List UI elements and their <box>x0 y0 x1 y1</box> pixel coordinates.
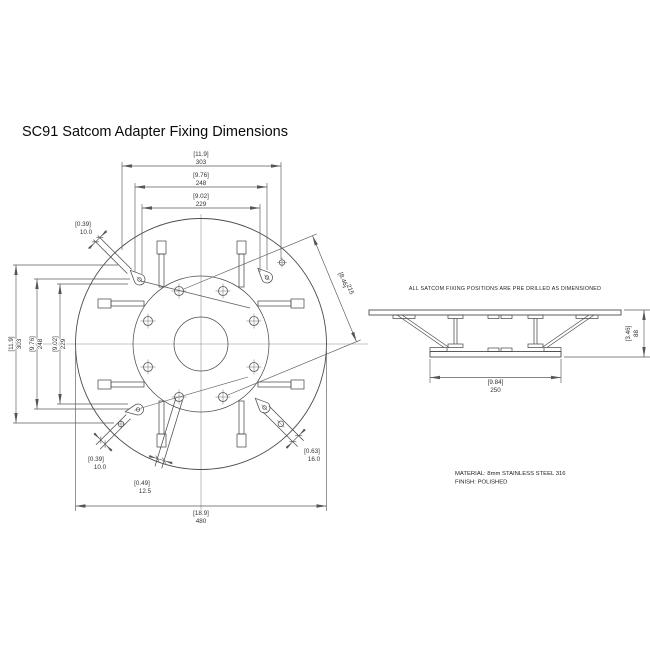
top-plate-section <box>369 310 621 315</box>
bolt-hole <box>141 314 156 329</box>
material-note: MATERIAL: 8mm STAINLESS STEEL 316 <box>455 471 566 477</box>
dim-left-229-mm: 229 <box>60 338 67 349</box>
label-slot-10-bottom-left: [0.39] 10.0 <box>88 456 107 471</box>
technical-drawing: SC91 Satcom Adapter Fixing Dimensions <box>0 0 650 650</box>
dim-bolt-circle: [8.46] 215 <box>183 234 361 396</box>
dim-88-inch: [3.46] <box>625 325 632 341</box>
dim-height: [3.46] 88 <box>564 310 650 357</box>
finish-note: FINISH: POLISHED <box>455 480 507 486</box>
dim-480-inch: [18.9] <box>193 510 209 517</box>
fixing-slot-south-right <box>237 401 246 447</box>
fixing-slot-north-left <box>157 241 166 287</box>
fixing-slot-east-lower <box>258 380 304 389</box>
dim-10b-inch: [0.39] <box>88 456 104 463</box>
front-view-dimensions: [11.9] 303 [9.76] 248 [9.02] 229 [11.9] … <box>8 151 361 525</box>
bolt-hole <box>172 284 187 299</box>
front-view <box>32 214 368 512</box>
dim-16-mm: 16.0 <box>308 456 321 463</box>
label-slot-16: [0.63] 16.0 <box>304 448 321 463</box>
fixing-slot-west-upper <box>98 299 144 308</box>
dim-10b-mm: 10.0 <box>94 464 107 471</box>
dim-16-inch: [0.63] <box>304 448 320 455</box>
construction-lines <box>141 281 250 408</box>
drill-hole <box>277 258 287 268</box>
dim-left-248-mm: 248 <box>37 338 44 349</box>
dim-left-303-mm: 303 <box>16 338 23 349</box>
bolt-hole <box>141 360 156 375</box>
page-title: SC91 Satcom Adapter Fixing Dimensions <box>22 124 288 140</box>
dim-10-mm: 10.0 <box>80 229 93 236</box>
vertical-webs <box>448 315 543 348</box>
dim-303-inch: [11.9] <box>193 151 209 158</box>
base-plate-section <box>430 352 561 358</box>
dim-229-inch: [9.02] <box>193 193 209 200</box>
dim-215-mm: 215 <box>345 283 356 296</box>
fixing-slot-west-lower <box>98 380 144 389</box>
bolt-hole <box>216 390 231 405</box>
dim-125-mm: 12.5 <box>139 488 152 495</box>
fixing-slot-east-upper <box>258 299 304 308</box>
drill-hole <box>116 419 126 429</box>
dim-248-mm: 248 <box>196 180 207 187</box>
dim-250-mm: 250 <box>490 387 501 394</box>
material-notes: MATERIAL: 8mm STAINLESS STEEL 316 FINISH… <box>455 471 566 486</box>
bottom-cleats <box>430 348 561 352</box>
dim-248-inch: [9.76] <box>193 172 209 179</box>
dim-229-mm: 229 <box>196 201 207 208</box>
pre-drilled-holes <box>116 258 287 430</box>
dim-303-mm: 303 <box>196 159 207 166</box>
bolt-hole <box>216 284 231 299</box>
fixing-slot-south-left <box>157 401 166 447</box>
dim-base-width: [9.84] 250 <box>430 359 561 394</box>
pre-drilled-note: ALL SATCOM FIXING POSITIONS ARE PRE DRIL… <box>409 286 601 292</box>
teardrop-hole-top-right <box>254 264 275 285</box>
label-slot-12-5: [0.49] 12.5 <box>134 480 152 495</box>
teardrop-hole-bottom-left <box>124 403 144 417</box>
teardrop-holes <box>124 264 275 417</box>
label-slot-10-top-left: [0.39] 10.0 <box>75 221 93 236</box>
side-view: ALL SATCOM FIXING POSITIONS ARE PRE DRIL… <box>369 286 650 394</box>
gusset-legs <box>397 315 594 348</box>
top-cleats <box>393 315 598 319</box>
dim-480-mm: 480 <box>196 518 207 525</box>
dim-88-mm: 88 <box>633 330 640 338</box>
diagonal-slot-bottom-left <box>89 407 138 456</box>
centerlines <box>32 214 368 512</box>
teardrop-hole-bottom-right <box>251 394 272 415</box>
dim-left-248-inch: [9.76] <box>29 336 36 352</box>
dim-10-inch: [0.39] <box>75 221 91 228</box>
dim-left-229-inch: [9.02] <box>52 336 59 352</box>
dim-250-inch: [9.84] <box>488 379 504 386</box>
drawing-sheet: SC91 Satcom Adapter Fixing Dimensions <box>0 0 650 650</box>
dim-125-inch: [0.49] <box>134 480 150 487</box>
dim-left-303-inch: [11.9] <box>8 336 15 352</box>
bolt-hole <box>247 360 262 375</box>
bolt-hole <box>247 314 262 329</box>
teardrop-hole-top-left <box>126 266 147 287</box>
